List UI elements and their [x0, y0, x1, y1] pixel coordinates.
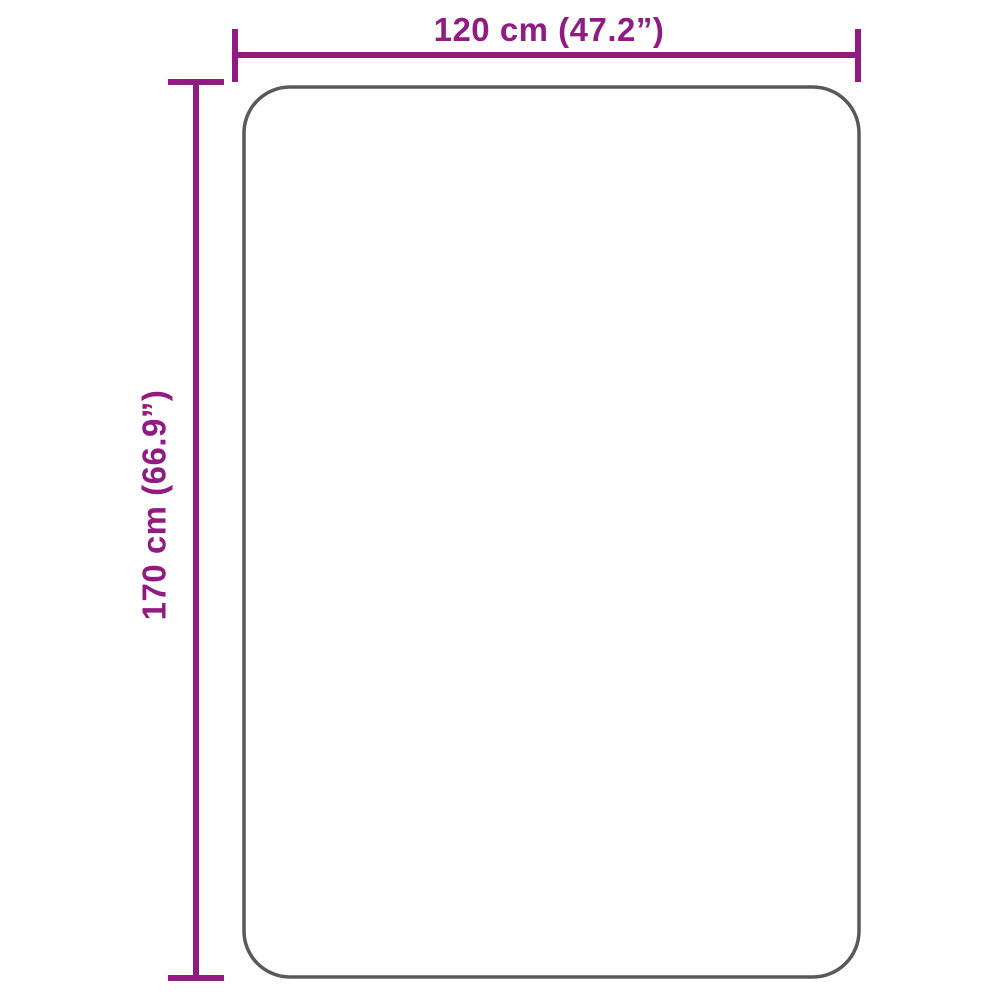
height-dimension-label: 170 cm (66.9”)	[138, 390, 171, 621]
width-dimension-label: 120 cm (47.2”)	[434, 13, 665, 46]
height-dimension-line	[168, 82, 224, 978]
product-outline	[244, 87, 859, 977]
dimension-diagram: 120 cm (47.2”) 170 cm (66.9”)	[0, 0, 1000, 1000]
